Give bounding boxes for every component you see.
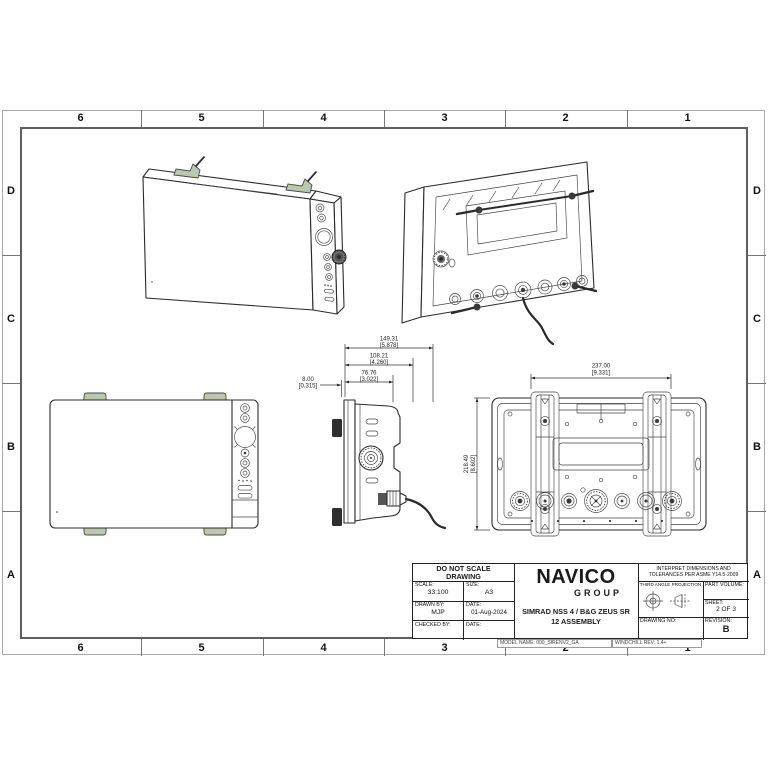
bracket-clip bbox=[332, 419, 342, 437]
navico-logo: NAVICO GROUP bbox=[514, 567, 638, 601]
dim-depth-total-in: [5.878] bbox=[380, 343, 399, 349]
mount-tab bbox=[204, 393, 226, 400]
dim-bezel-in: [0.315] bbox=[299, 383, 318, 389]
bracket-clip bbox=[332, 508, 342, 526]
checked-date-cell: DATE: bbox=[464, 621, 514, 640]
views-canvas: 149.31 [5.878] 108.21 [4.260] 76.76 [3.0… bbox=[0, 0, 768, 768]
view-front bbox=[50, 393, 258, 535]
mount-rail bbox=[531, 392, 559, 536]
dim-height-in: [8.602] bbox=[471, 454, 477, 473]
display-bezel bbox=[50, 400, 258, 528]
mount-tab bbox=[84, 528, 106, 535]
date-cell: DATE: 01-Aug-2024 bbox=[464, 601, 514, 620]
drawn-by-cell: DRAWN BY: MJP bbox=[413, 601, 463, 620]
dim-width-mm: 237.00 bbox=[592, 364, 611, 370]
model-name-note: MODEL NAME: 000_SIRENV2_GA bbox=[497, 639, 612, 648]
part-volume-cell: PART VOLUME: bbox=[703, 581, 749, 599]
drawing-sheet: 6 5 4 3 2 1 6 5 4 3 2 1 D C B A D C B A bbox=[0, 0, 768, 768]
size-cell: SIZE: A3 bbox=[464, 581, 514, 600]
revision-cell: REVISION: B bbox=[703, 617, 749, 640]
dim-bezel-mm: 8.00 bbox=[302, 377, 314, 383]
dim-depth-front-mm: 76.76 bbox=[361, 371, 377, 377]
title-block: DO NOT SCALE DRAWING SCALE: 33:100 SIZE:… bbox=[412, 563, 748, 639]
dim-depth-front-in: [3.022] bbox=[360, 377, 379, 383]
scale-cell: SCALE: 33:100 bbox=[413, 581, 463, 600]
drawing-title: SIMRAD NSS 4 / B&G ZEUS SR 12 ASSEMBLY bbox=[514, 602, 638, 638]
do-not-scale-note: DO NOT SCALE DRAWING bbox=[413, 564, 514, 581]
view-iso-front bbox=[143, 157, 346, 314]
view-iso-rear bbox=[402, 162, 596, 344]
dim-depth-mid-mm: 108.21 bbox=[370, 354, 389, 360]
power-cable bbox=[523, 298, 553, 344]
rear-connector bbox=[378, 493, 387, 505]
mount-rail bbox=[643, 392, 671, 536]
checked-by-cell: CHECKED BY: bbox=[413, 621, 463, 640]
windchill-rev-note: WINDCHILL REV: 1.4+ bbox=[612, 639, 702, 648]
dim-height-mm: 218.49 bbox=[464, 454, 470, 473]
mount-tab bbox=[84, 393, 106, 400]
view-rear: 237.00 [9.331] 218.49 [8.602] bbox=[464, 364, 706, 537]
sheet-cell: SHEET: 2 OF 3 bbox=[703, 599, 749, 617]
drawing-no-cell: DRAWING NO: bbox=[638, 617, 703, 640]
dim-depth-mid-in: [4.260] bbox=[370, 360, 389, 366]
third-angle-projection-icon bbox=[642, 590, 698, 612]
mount-tab bbox=[204, 528, 226, 535]
power-cable bbox=[406, 499, 445, 528]
projection-cell: THIRD ANGLE PROJECTION bbox=[638, 581, 703, 617]
view-side: 149.31 [5.878] 108.21 [4.260] 76.76 [3.0… bbox=[299, 337, 445, 529]
tolerance-note: INTERPRET DIMENSIONS AND TOLERANCES PER … bbox=[638, 564, 749, 581]
dim-width-in: [9.331] bbox=[592, 370, 611, 376]
dim-depth-total-mm: 149.31 bbox=[380, 337, 399, 343]
